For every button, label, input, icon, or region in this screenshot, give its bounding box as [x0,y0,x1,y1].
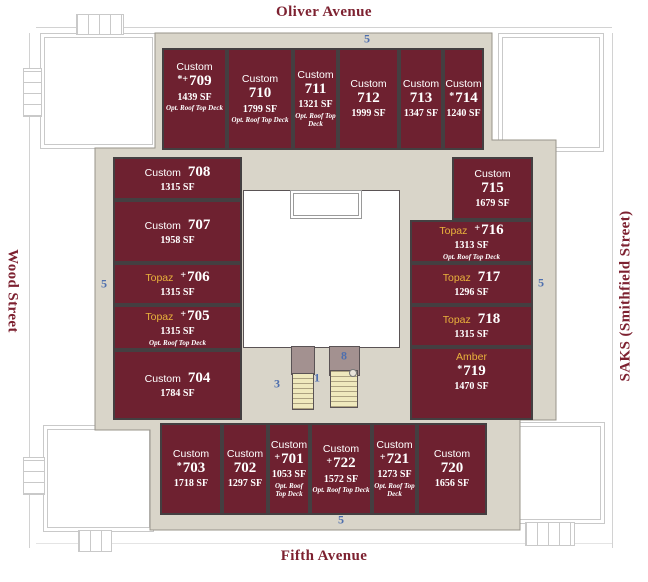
unit-number: 711 [305,81,327,98]
unit-brand: Custom [145,167,181,179]
unit-roof-deck-note: Opt. Roof Top Deck [313,486,370,495]
unit-prefix: + [180,309,186,320]
unit-roof-deck-note: Opt. Roof Top Deck [270,482,308,500]
unit-710: Custom7101799 SFOpt. Roof Top Deck [227,48,293,150]
unit-brand: Custom [176,61,212,73]
elevator-shaft [292,373,314,410]
unit-square-footage: 1470 SF [454,381,488,393]
unit-brand: Custom [173,448,209,460]
unit-number: +701 [274,451,303,468]
unit-square-footage: 1321 SF [298,99,332,111]
plan-marker-stair-bottom: 5 [338,513,344,528]
unit-square-footage: 1315 SF [454,329,488,341]
unit-title-row: Topaz717 [443,269,501,286]
unit-roof-deck-note: Opt. Roof Top Deck [166,104,223,113]
unit-702: Custom7021297 SF [222,423,268,515]
unit-prefix: * [457,364,462,375]
street-label-wood-street: Wood Street [4,249,21,333]
plan-marker-stair-left: 5 [101,277,107,292]
unit-square-footage: 1053 SF [272,469,306,481]
unit-roof-deck-note: Opt. Roof Top Deck [443,253,500,262]
unit-prefix: * [449,91,454,102]
unit-brand: Custom [227,448,263,460]
unit-number: 720 [441,460,464,477]
unit-number: 717 [478,269,501,286]
unit-brand: Custom [323,443,359,455]
unit-square-footage: 1439 SF [177,92,211,104]
unit-number: 702 [234,460,257,477]
unit-brand: Custom [445,78,481,90]
unit-title-row: Topaz718 [443,311,501,328]
unit-prefix: *+ [177,74,188,85]
unit-roof-deck-note: Opt. Roof Top Deck [232,116,289,125]
unit-712: Custom7121999 SF [338,48,399,150]
plan-marker-core-1: 1 [314,371,320,386]
unit-square-footage: 1679 SF [475,198,509,210]
unit-prefix: + [380,452,386,463]
unit-number: +716 [474,222,503,239]
unit-number: 704 [188,370,211,387]
unit-brand: Custom [350,78,386,90]
unit-709: Custom*+7091439 SFOpt. Roof Top Deck [162,48,227,150]
unit-705: Topaz+7051315 SFOpt. Roof Top Deck [113,305,242,350]
unit-brand: Topaz [443,272,471,284]
unit-number: +722 [326,455,355,472]
unit-number: 713 [410,90,433,107]
unit-brand: Custom [474,168,510,180]
unit-title-row: Custom707 [145,217,211,234]
unit-number: 718 [478,311,501,328]
unit-title-row: Topaz+706 [145,269,209,286]
unit-prefix: + [474,223,480,234]
unit-prefix: * [177,461,182,472]
unit-711: Custom7111321 SFOpt. Roof Top Deck [293,48,338,150]
unit-brand: Custom [403,78,439,90]
unit-prefix: + [326,456,332,467]
unit-701: Custom+7011053 SFOpt. Roof Top Deck [268,423,310,515]
unit-703: Custom*7031718 SF [160,423,222,515]
unit-square-footage: 1273 SF [377,469,411,481]
unit-roof-deck-note: Opt. Roof Top Deck [374,482,415,500]
unit-title-row: Topaz+705 [145,308,209,325]
unit-718: Topaz7181315 SF [410,305,533,347]
plan-marker-stair-right: 5 [538,276,544,291]
column-icon [349,369,357,377]
unit-716: Topaz+7161313 SFOpt. Roof Top Deck [410,220,533,263]
unit-square-footage: 1315 SF [160,182,194,194]
unit-square-footage: 1718 SF [174,478,208,490]
unit-722: Custom+7221572 SFOpt. Roof Top Deck [310,423,372,515]
unit-brand: Custom [434,448,470,460]
unit-number: 712 [357,90,380,107]
unit-square-footage: 1347 SF [404,108,438,120]
street-label-oliver-avenue: Oliver Avenue [0,4,648,21]
unit-719: Amber*7191470 SF [410,347,533,420]
unit-number: +706 [180,269,209,286]
unit-brand: Custom [145,220,181,232]
unit-715: Custom7151679 SF [452,157,533,220]
plan-marker-core-3: 3 [274,377,280,392]
unit-704: Custom7041784 SF [113,350,242,420]
unit-roof-deck-note: Opt. Roof Top Deck [149,339,206,348]
unit-number: *719 [457,363,486,380]
unit-brand: Custom [242,73,278,85]
unit-square-footage: 1315 SF [160,326,194,338]
unit-number: 715 [481,180,504,197]
street-label-fifth-avenue: Fifth Avenue [0,548,648,565]
vestibule [291,346,315,375]
unit-square-footage: 1313 SF [454,240,488,252]
unit-title-row: Custom704 [145,370,211,387]
unit-square-footage: 1296 SF [454,287,488,299]
unit-721: Custom+7211273 SFOpt. Roof Top Deck [372,423,417,515]
unit-square-footage: 1240 SF [446,108,480,120]
unit-square-footage: 1297 SF [228,478,262,490]
unit-number: *+709 [177,73,211,90]
unit-brand: Custom [376,439,412,451]
unit-720: Custom7201656 SF [417,423,487,515]
unit-number: 710 [249,85,272,102]
unit-title-row: Topaz+716 [439,222,503,239]
plan-marker-stair-top: 5 [364,32,370,47]
plan-marker-core-8: 8 [341,349,347,364]
unit-number: *714 [449,90,478,107]
unit-prefix: + [180,270,186,281]
unit-prefix: + [274,452,280,463]
unit-brand: Amber [456,351,487,363]
unit-number: +705 [180,308,209,325]
unit-number: *703 [177,460,206,477]
unit-717: Topaz7171296 SF [410,263,533,305]
unit-708: Custom7081315 SF [113,157,242,200]
unit-706: Topaz+7061315 SF [113,263,242,305]
unit-brand: Topaz [145,272,173,284]
unit-brand: Topaz [439,225,467,237]
unit-square-footage: 1315 SF [160,287,194,299]
unit-brand: Custom [271,439,307,451]
unit-707: Custom7071958 SF [113,200,242,263]
unit-number: +721 [380,451,409,468]
unit-square-footage: 1656 SF [435,478,469,490]
floor-plan: Custom*+7091439 SFOpt. Roof Top DeckCust… [0,0,648,582]
street-label-saks-smithfield: SAKS (Smithfield Street) [618,211,635,382]
unit-brand: Custom [145,373,181,385]
unit-square-footage: 1784 SF [160,388,194,400]
unit-number: 707 [188,217,211,234]
unit-number: 708 [188,164,211,181]
unit-brand: Topaz [443,314,471,326]
unit-roof-deck-note: Opt. Roof Top Deck [295,112,336,130]
unit-title-row: Custom708 [145,164,211,181]
unit-713: Custom7131347 SF [399,48,443,150]
unit-square-footage: 1799 SF [243,104,277,116]
unit-square-footage: 1999 SF [351,108,385,120]
unit-714: Custom*7141240 SF [443,48,484,150]
unit-brand: Custom [297,69,333,81]
unit-square-footage: 1572 SF [324,474,358,486]
skylight-opening [290,190,362,219]
unit-brand: Topaz [145,311,173,323]
unit-square-footage: 1958 SF [160,235,194,247]
